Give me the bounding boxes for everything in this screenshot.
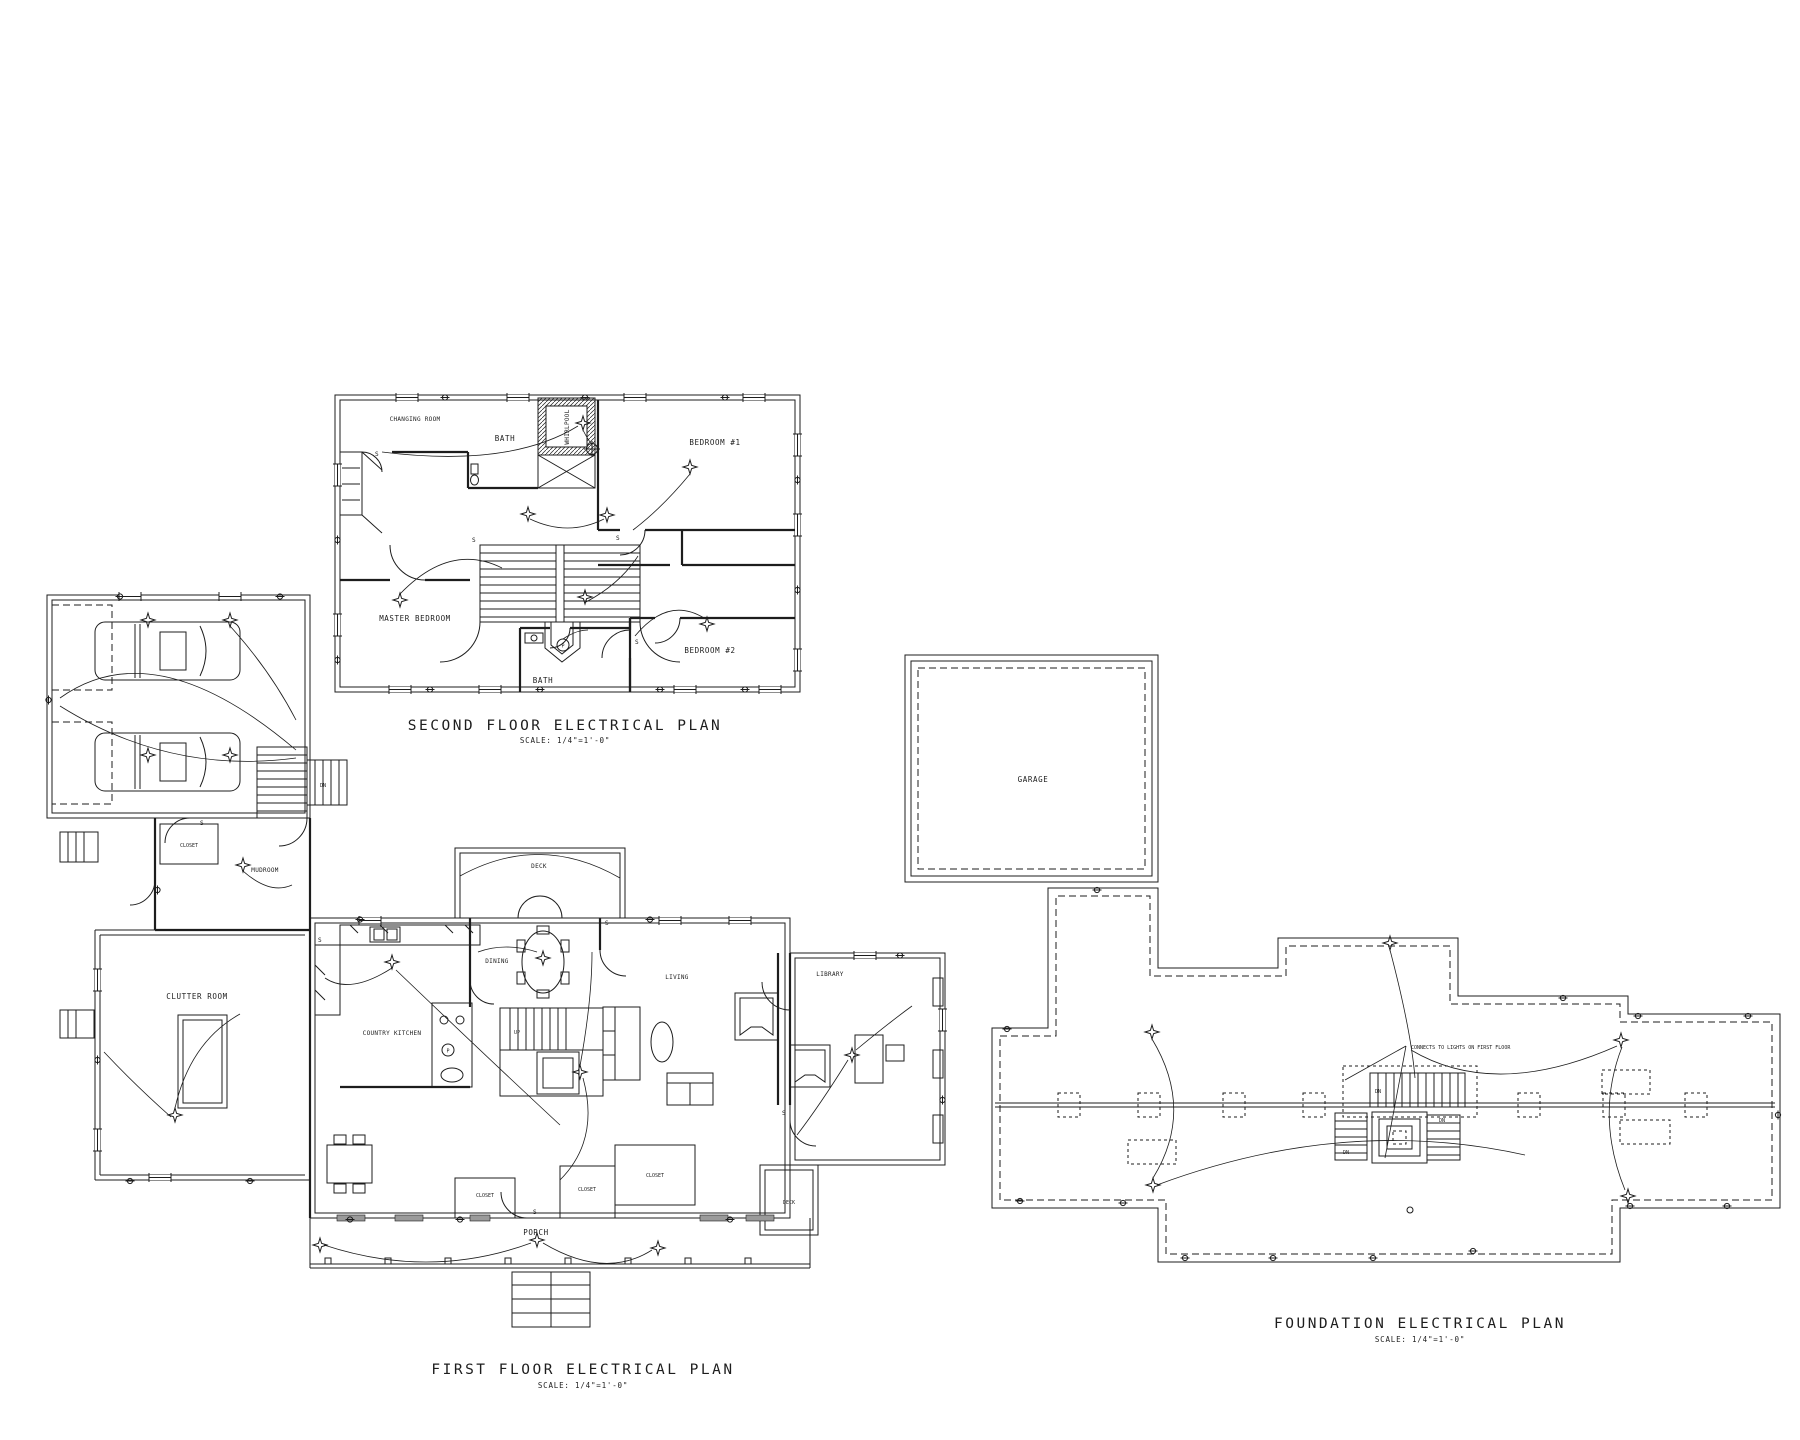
window-icon [93,1129,102,1151]
stair-label-dn: DN [1375,1089,1381,1095]
receptacle-icon [246,1178,255,1183]
first-floor-room-labels: MUDROOM CLOSET CLUTTER ROOM COUNTRY KITC… [166,783,843,1237]
room-label-closet: CLOSET [578,1187,596,1193]
room-label-porch: PORCH [523,1228,549,1237]
switch-icon: S [318,937,322,944]
ceiling-light-icon [521,507,535,521]
ceiling-light-icon [141,748,155,762]
room-label-whirlpool: WHIRLPOOL [564,409,571,444]
stair-label-dn: DN [1343,1150,1349,1156]
room-label-bath-upper: BATH [495,434,515,443]
switch-icon: S [616,535,620,542]
room-label-deck-upper: DECK [531,863,547,870]
receptacle-icon [95,1056,100,1065]
room-label-closet: CLOSET [646,1173,664,1179]
switch-icon: S [782,1110,786,1117]
ceiling-light-icon [683,460,697,474]
stair-label-dn: DN [320,783,326,789]
ceiling-light-icon [845,1048,859,1062]
room-label-closet: CLOSET [180,843,198,849]
foundation-electrical [1003,887,1781,1260]
receptacle-icon [795,476,800,485]
room-label-bedroom-1: BEDROOM #1 [689,438,740,447]
exhaust-fan-icon: P [442,1044,454,1056]
room-label-garage: GARAGE [1018,775,1049,784]
note-connects: CONNECTS TO LIGHTS ON FIRST FLOOR [1411,1045,1511,1051]
switch-icon: S [375,451,379,458]
switch-icon: S [605,920,609,927]
ceiling-light-icon [1614,1033,1628,1047]
receptacle-icon [1469,1248,1478,1253]
window-icon [93,969,102,991]
room-label-mudroom: MUDROOM [251,867,278,874]
window-icon [507,393,529,402]
room-label-library: LIBRARY [816,971,843,978]
receptacle-icon [1269,1255,1278,1260]
ceiling-light-icon [236,858,250,872]
switch-icon: S [533,1209,537,1216]
room-label-dining: DINING [485,958,509,965]
first-floor-plan: P S S S S S MUDROOM CLOSET CLUTTER ROOM … [40,580,950,1425]
window-icon [149,1173,171,1182]
car [95,733,240,791]
room-label-country-kitchen: COUNTRY KITCHEN [363,1030,422,1037]
receptacle-icon [126,1178,135,1183]
ceiling-light-icon [1145,1025,1159,1039]
stair-label-up: UP [514,1030,520,1036]
window-icon [659,916,681,925]
ceiling-light-icon [573,1065,587,1079]
window-icon [854,951,876,960]
window-icon [333,464,342,486]
foundation-scale: SCALE: 1/4"=1'-0" [1375,1335,1465,1344]
window-icon [624,393,646,402]
receptacle-icon [441,395,450,400]
window-icon [729,916,751,925]
room-label-living: LIVING [665,974,689,981]
switch-icon: S [472,537,476,544]
window-icon [743,393,765,402]
switch-icon: S [200,820,204,827]
receptacle-icon [721,395,730,400]
stair-label-dn: DN [1439,1118,1445,1124]
receptacle-icon [1016,1198,1025,1203]
foundation-labels: GARAGE CONNECTS TO LIGHTS ON FIRST FLOOR… [1018,775,1512,1156]
svg-text:P: P [446,1049,449,1055]
room-label-closet: CLOSET [476,1193,494,1199]
ceiling-light-icon [223,613,237,627]
foundation-plan: GARAGE CONNECTS TO LIGHTS ON FIRST FLOOR… [895,650,1800,1360]
ceiling-light-icon [651,1241,665,1255]
foundation-walls [905,655,1780,1262]
window-icon [793,514,802,536]
receptacle-icon [1369,1255,1378,1260]
ceiling-light-icon [1621,1189,1635,1203]
drawing-sheet: P S S S S CHANGING ROOM BATH WHIRLPOOL B… [0,0,1800,1440]
window-icon [396,393,418,402]
car [95,622,240,680]
window-icon [793,434,802,456]
ceiling-light-icon [223,748,237,762]
foundation-title: FOUNDATION ELECTRICAL PLAN [1274,1316,1566,1332]
first-floor-title: FIRST FLOOR ELECTRICAL PLAN [431,1362,734,1378]
receptacle-icon [1003,1026,1012,1031]
room-label-changing-room: CHANGING ROOM [390,416,441,423]
receptacle-icon [1181,1255,1190,1260]
first-floor-scale: SCALE: 1/4"=1'-0" [538,1381,628,1390]
room-label-clutter-room: CLUTTER ROOM [166,992,227,1001]
ceiling-light-icon [168,1108,182,1122]
ceiling-light-icon [536,951,550,965]
ceiling-light-icon [385,955,399,969]
receptacle-icon [335,536,340,545]
first-floor-electrical: P S S S S S [46,594,945,1264]
ceiling-light-icon [141,613,155,627]
receptacle-icon [1119,1200,1128,1205]
room-label-deck-side: DECK [783,1200,795,1206]
